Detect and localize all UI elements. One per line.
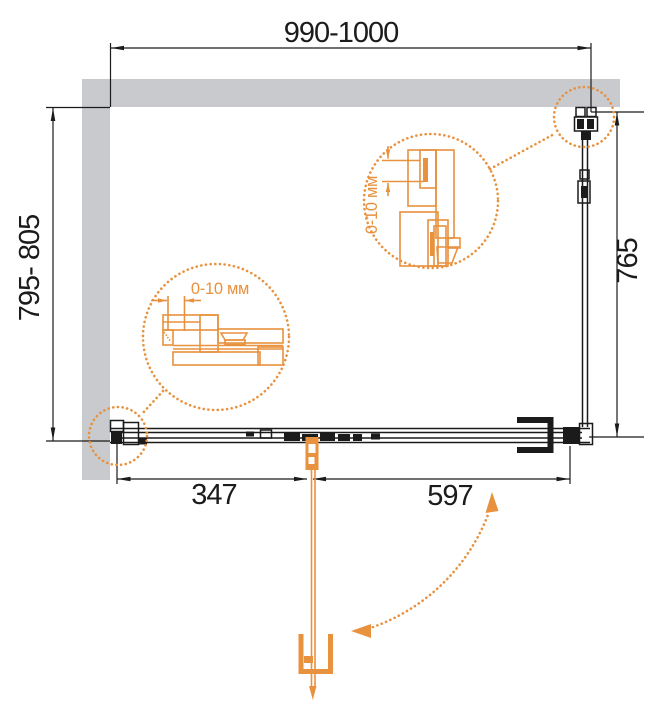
dim-right-height-label: 765	[612, 238, 644, 283]
dim-bottom-door-label: 597	[427, 480, 472, 512]
front-panel-assembly	[110, 420, 593, 450]
door-swing-arc	[364, 512, 489, 630]
door-open-position	[301, 437, 499, 700]
callout-leader-right	[490, 133, 556, 169]
door-handle	[517, 420, 551, 450]
callout-right-adjustment-label: 0-10 мм	[363, 176, 381, 234]
wall-top	[82, 79, 620, 107]
enclosure-plan	[110, 108, 598, 451]
callout-right-profile-drawing	[382, 146, 460, 266]
dim-top-width-label: 990-1000	[284, 17, 399, 49]
callout-left-adjustment-label: 0-10 мм	[191, 280, 249, 298]
diagram-svg: 990-1000 795- 805 765 347 597 0-10 мм	[0, 0, 664, 720]
side-panel-glass	[575, 108, 598, 428]
dim-bottom-fixed-label: 347	[191, 479, 236, 511]
wall-left	[82, 79, 110, 480]
door-pivot-profile	[306, 437, 319, 470]
swing-arrow-left	[351, 624, 371, 638]
callout-leader-left	[141, 391, 163, 415]
swing-arrow-up	[486, 492, 499, 513]
door-edge-tip	[309, 686, 317, 700]
dim-left-depth-label: 795- 805	[14, 215, 46, 322]
callout-left-profile-drawing	[151, 296, 283, 365]
technical-drawing-canvas: 990-1000 795- 805 765 347 597 0-10 мм	[0, 0, 664, 720]
